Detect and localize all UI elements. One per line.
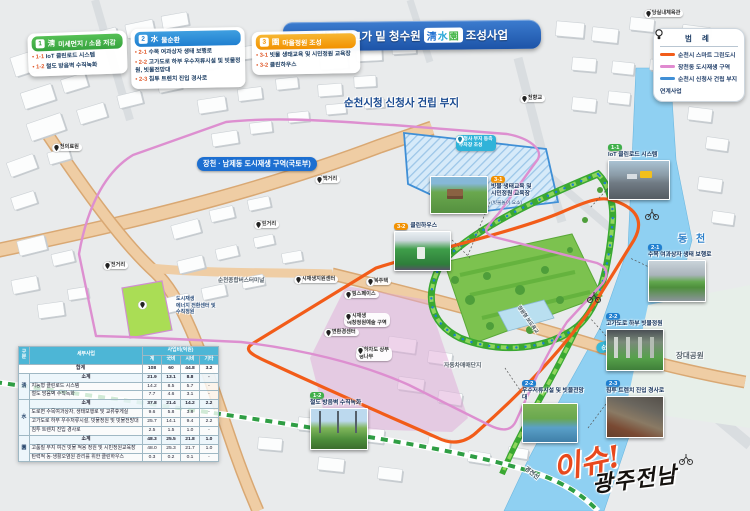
title-hanja: 淸水園 (424, 27, 463, 42)
callout-2-3-ramp: 2-3 침투 트렌치 진입 경사로 (606, 380, 668, 438)
car-market-label: 자동차매매단지 (444, 360, 481, 369)
parking-badge: 신청사 부지 동측 주차장 조성 (456, 135, 496, 151)
card-number: 2 (139, 35, 148, 44)
title-suffix: 조성사업 (466, 26, 508, 42)
card-hanja: 淸 (47, 38, 55, 49)
map-pin-icon (456, 135, 464, 145)
orange-line-swatch (660, 53, 675, 56)
legend-card-water: 2 水 물순환 • 2-1 수목 여과상자 생태 보행로 • 2-2 고가도로 … (130, 27, 245, 89)
photo-garden-education (430, 176, 488, 214)
new-cityhall-label: 순천시청 신청사 건립 부지 (344, 95, 459, 110)
callout-3-1-education: 3-1 빗물 생태교육 및 시민정원 교육장 (빗물놀이 요소) (430, 176, 545, 214)
legend-row-cityhall: 순천시 신청사 건립 부지 (660, 74, 738, 83)
legend-item: • 2-3 침투 트렌치 진입 경사로 (135, 76, 241, 86)
table-row: 지능형 클린로드 시스템14.28.55.7- (19, 382, 219, 391)
pin-gwangbaek-street: 광백거리 (315, 175, 340, 183)
card-title: 물순환 (161, 34, 180, 44)
legend-card-garden-header: 3 園 마을정원 조성 (256, 33, 356, 50)
legend-card-air: 1 淸 미세먼지 / 소음 저감 • 1-1 IoT 클린로드 시스템 • 1-… (27, 30, 127, 76)
callout-3-2-clean-house: 3-2 클린하우스 (394, 223, 454, 271)
pin-art-garden-zone: 도시재생 예창정원예술 구역 (344, 312, 390, 327)
legend-row-smart-green: 순천시 스마트 그린도시 (660, 50, 738, 59)
bulb-icon (654, 29, 664, 40)
callout-2-1-eco-walkway: 2-1 수목 여과상자 생태 보행로 (648, 244, 714, 302)
callout-2-2-rain-garden: 2-2 고가도로 하부 빗물정원 (606, 313, 668, 371)
budget-table: 구분세부사업사업비(억원)계국비시비기타합계1086044.83.2淸소계21.… (18, 346, 219, 462)
pin-community-center: 주변환경센터 (324, 328, 359, 336)
photo-underpass-garden (606, 329, 664, 371)
table-row: 園소계48.325.521.81.0 (19, 435, 219, 444)
table-row: 철도 방음벽 수직녹화7.74.63.1- (19, 391, 219, 400)
pin-station-street: 역전거리 (103, 261, 128, 269)
photo-clean-house (394, 231, 451, 271)
legend-card-water-header: 2 水 물순환 (135, 30, 241, 47)
energy-center-label: 도시재생 에너지 전환센터 및 수직정원 (176, 296, 216, 316)
legend-item: • 3-1 빗물 생태교육 및 시민정원 교육장 (256, 51, 356, 61)
pin-space: 팜핑스페이스 (344, 290, 379, 298)
callout-2-2-storage: 2-2 우수저류시설 및 빗물전망대 (522, 380, 584, 443)
table-row: 합계1086044.83.2 (19, 364, 219, 373)
photo-eco-walkway (648, 260, 706, 302)
blue-line-swatch (660, 77, 675, 80)
callout-1-2-sound-wall: 1-2 철도 방음벽 수직녹화 (310, 392, 372, 450)
legend-item: • 2-1 수목 여과상자 생태 보행로 (135, 48, 241, 58)
regen-zone-badge: 장천 · 남제동 도시재생 구역(국토부) (197, 157, 317, 171)
callout-1-1-clean-road: 1-1 IoT 클린로드 시스템 (608, 144, 674, 200)
card-hanja: 水 (151, 34, 159, 45)
table-row: 고품질 부지 여건 빗물 적용 정원 및 시민정원교육장48.025.321.7… (19, 444, 219, 453)
pin-medical-center: 순천의료원 (52, 143, 82, 151)
table-row: 침투 트렌치 진입 경사로2.51.51.0- (19, 426, 219, 435)
legend-card-garden: 3 園 마을정원 조성 • 3-1 빗물 생태교육 및 시민정원 교육장 • 3… (252, 30, 361, 75)
pink-line-swatch (660, 65, 675, 68)
pin-regen-center: 도시재생지원센터 (294, 275, 338, 283)
pin-hyanggyo: 순천향교 (520, 94, 545, 102)
card-title: 미세먼지 / 소음 저감 (58, 36, 116, 48)
card-number: 3 (260, 38, 269, 47)
map-legend-title: 범 례 (660, 33, 738, 47)
photo-clean-road (608, 160, 670, 200)
pin-happy-housing: 행복주택 (366, 277, 391, 285)
card-number: 1 (35, 39, 44, 48)
legend-row-regen: 장천동 도시재생 구역 (660, 62, 738, 71)
table-row: 도로변 수목여과상자, 생태보행로 및 교류휴게실9.65.83.8- (19, 409, 219, 418)
legend-item: • 2-2 고가도로 하부 우수저류시설 및 빗물정원, 빗물전망대 (135, 58, 241, 75)
table-row: 탄력적 동·생활오염원 관리를 위한 클린하우스0.30.20.1- (19, 453, 219, 462)
table-row: 淸소계21.913.18.8- (19, 373, 219, 382)
legend-item: • 3-2 클린하우스 (256, 61, 356, 71)
photo-sound-wall (310, 408, 368, 450)
pin-open-street: 열린거리 (254, 220, 279, 228)
bus-terminal-label: 순천종합버스터미널 (218, 276, 264, 284)
river-label: 동 천 (678, 230, 708, 245)
project-map-poster: 장천동 고가 밑 청수원 淸水園 조성사업 1 淸 미세먼지 / 소음 저감 •… (0, 0, 750, 511)
pin-gymnasium: 금당실내체육관 (644, 9, 683, 17)
card-hanja: 園 (272, 36, 280, 47)
table-row: 水소계37.821.414.22.2 (19, 400, 219, 409)
photo-storage-garden (522, 403, 578, 443)
legend-row-linked: 연계사업 (660, 86, 738, 95)
map-legend: 범 례 순천시 스마트 그린도시 장천동 도시재생 구역 순천시 신청사 건립 … (653, 28, 745, 102)
table-row: 고가도로 하부 우수저류시설, 빗물정원 및 빗물전망대25.714.19.42… (19, 418, 219, 427)
card-title: 마을정원 조성 (282, 36, 322, 47)
legend-card-air-header: 1 淸 미세먼지 / 소음 저감 (31, 33, 122, 51)
park-label: 장대공원 (676, 350, 704, 361)
pin-hackberry-tree: 지하차도 상부 팽나무 (356, 346, 392, 361)
legend-item: • 1-2 철도 방음벽 수직녹화 (32, 61, 123, 72)
